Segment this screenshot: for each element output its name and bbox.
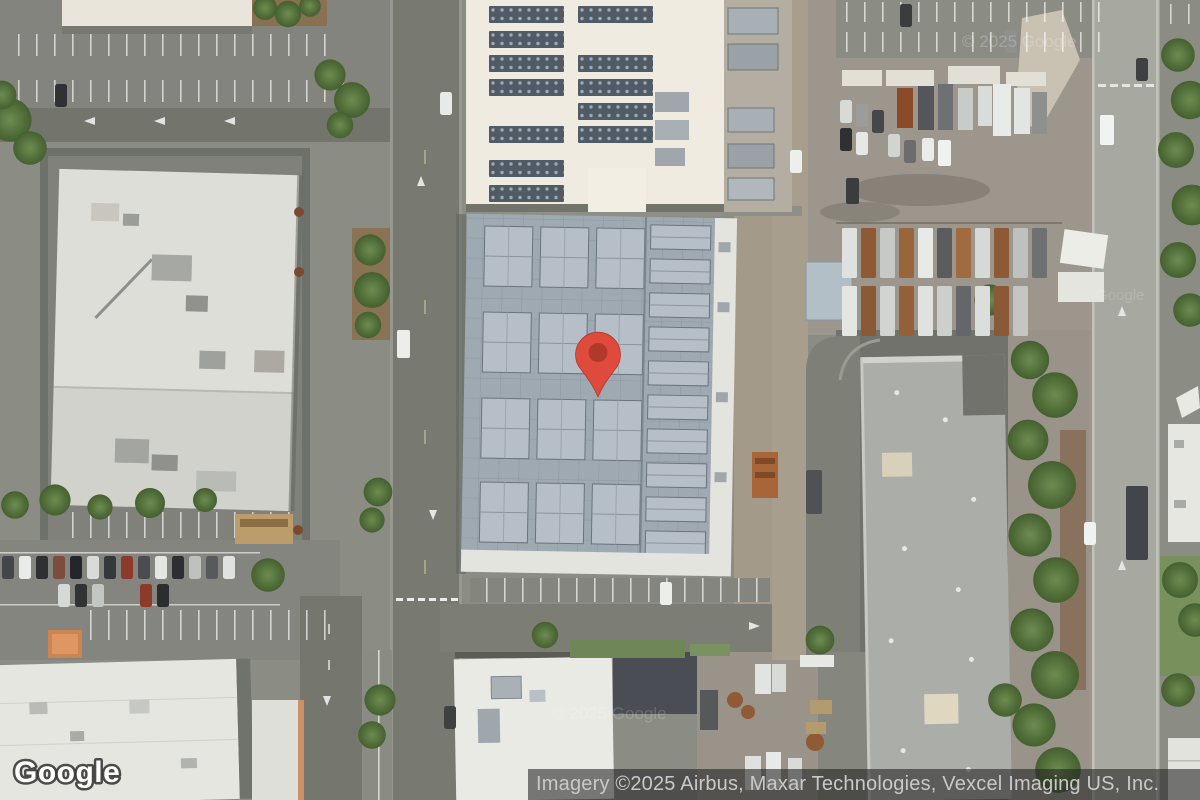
imagery-watermark: Google: [1096, 287, 1144, 304]
imagery-attribution: Imagery ©2025 Airbus, Maxar Technologies…: [528, 769, 1200, 800]
marker-dot: [589, 343, 608, 362]
imagery-attribution-text: Imagery ©2025 Airbus, Maxar Technologies…: [536, 773, 1159, 795]
imagery-watermark: © 2025 Google: [962, 32, 1077, 51]
google-logo-text[interactable]: Google: [14, 756, 120, 789]
imagery-watermark: © 2025 Google: [552, 704, 667, 723]
satellite-imagery: © 2025 Google © 2025 Google Google: [0, 0, 1200, 800]
google-logo[interactable]: Google: [10, 751, 140, 795]
map-viewport[interactable]: © 2025 Google © 2025 Google Google Googl…: [0, 0, 1200, 800]
